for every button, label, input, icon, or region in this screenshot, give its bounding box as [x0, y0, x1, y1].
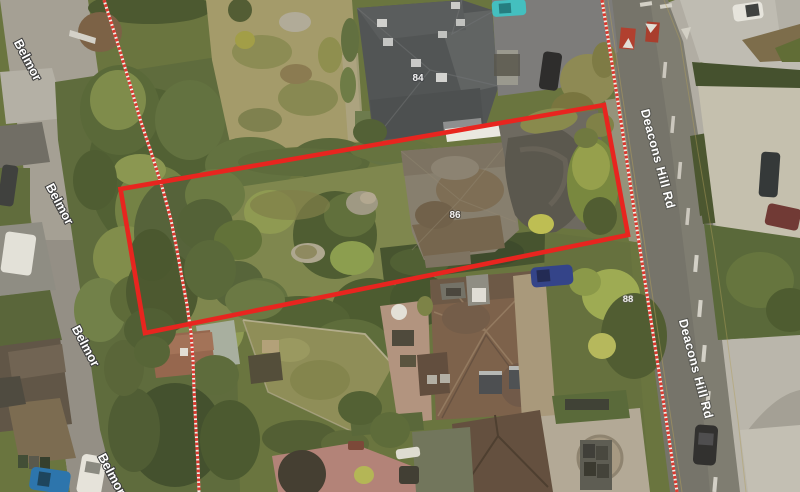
svg-text:88: 88	[623, 294, 634, 305]
svg-text:84: 84	[412, 73, 424, 84]
svg-text:86: 86	[449, 210, 461, 221]
